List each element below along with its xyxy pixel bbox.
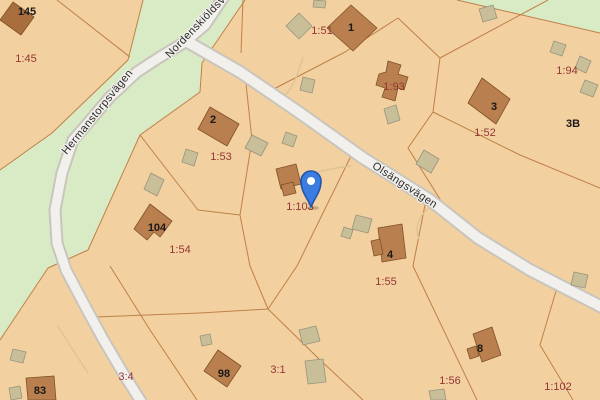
building-number-104: 104 — [148, 222, 167, 234]
parcel-label-3-1: 3:1 — [270, 364, 285, 376]
building-number-4: 4 — [387, 249, 394, 261]
map-canvas[interactable]: 1:451:511:931:941:521:531:541:1031:551:5… — [0, 0, 600, 400]
outbuilding — [200, 334, 212, 346]
map-svg: 1:451:511:931:941:521:531:541:1031:551:5… — [0, 0, 600, 400]
parcel-label-1-94: 1:94 — [556, 65, 577, 77]
building-number-2: 2 — [210, 114, 216, 126]
building-number-8: 8 — [477, 343, 483, 355]
building-number-98: 98 — [218, 368, 230, 380]
outbuilding — [10, 349, 26, 363]
outbuilding — [429, 389, 446, 400]
parcel-label-1-52: 1:52 — [474, 127, 495, 139]
parcel-label-1-45: 1:45 — [15, 53, 36, 65]
location-pin-dot — [307, 177, 315, 185]
parcel-label-1-56: 1:56 — [439, 375, 460, 387]
parcel-label-1-53: 1:53 — [210, 151, 231, 163]
outbuilding — [571, 272, 588, 288]
parcel-label-1-54: 1:54 — [169, 244, 190, 256]
building-number-1: 1 — [348, 22, 354, 34]
building-number-83: 83 — [34, 385, 46, 397]
parcel-label-1-55: 1:55 — [375, 276, 396, 288]
outbuilding — [313, 0, 326, 8]
building-number-145: 145 — [18, 6, 36, 18]
outbuilding — [299, 326, 320, 345]
parcel-label-1-93: 1:93 — [383, 81, 404, 93]
outbuilding — [9, 386, 22, 400]
parcel-label-1-102: 1:102 — [544, 381, 572, 393]
outbuilding — [305, 359, 326, 384]
building-pin-house-wing — [281, 182, 296, 196]
parcel-label-3-4: 3:4 — [118, 371, 133, 383]
outbuilding — [300, 77, 315, 93]
building-number-3B: 3B — [566, 118, 580, 130]
parcel-label-1-51: 1:51 — [311, 25, 332, 37]
pin-shadow — [307, 206, 319, 210]
building-number-3: 3 — [491, 101, 497, 113]
